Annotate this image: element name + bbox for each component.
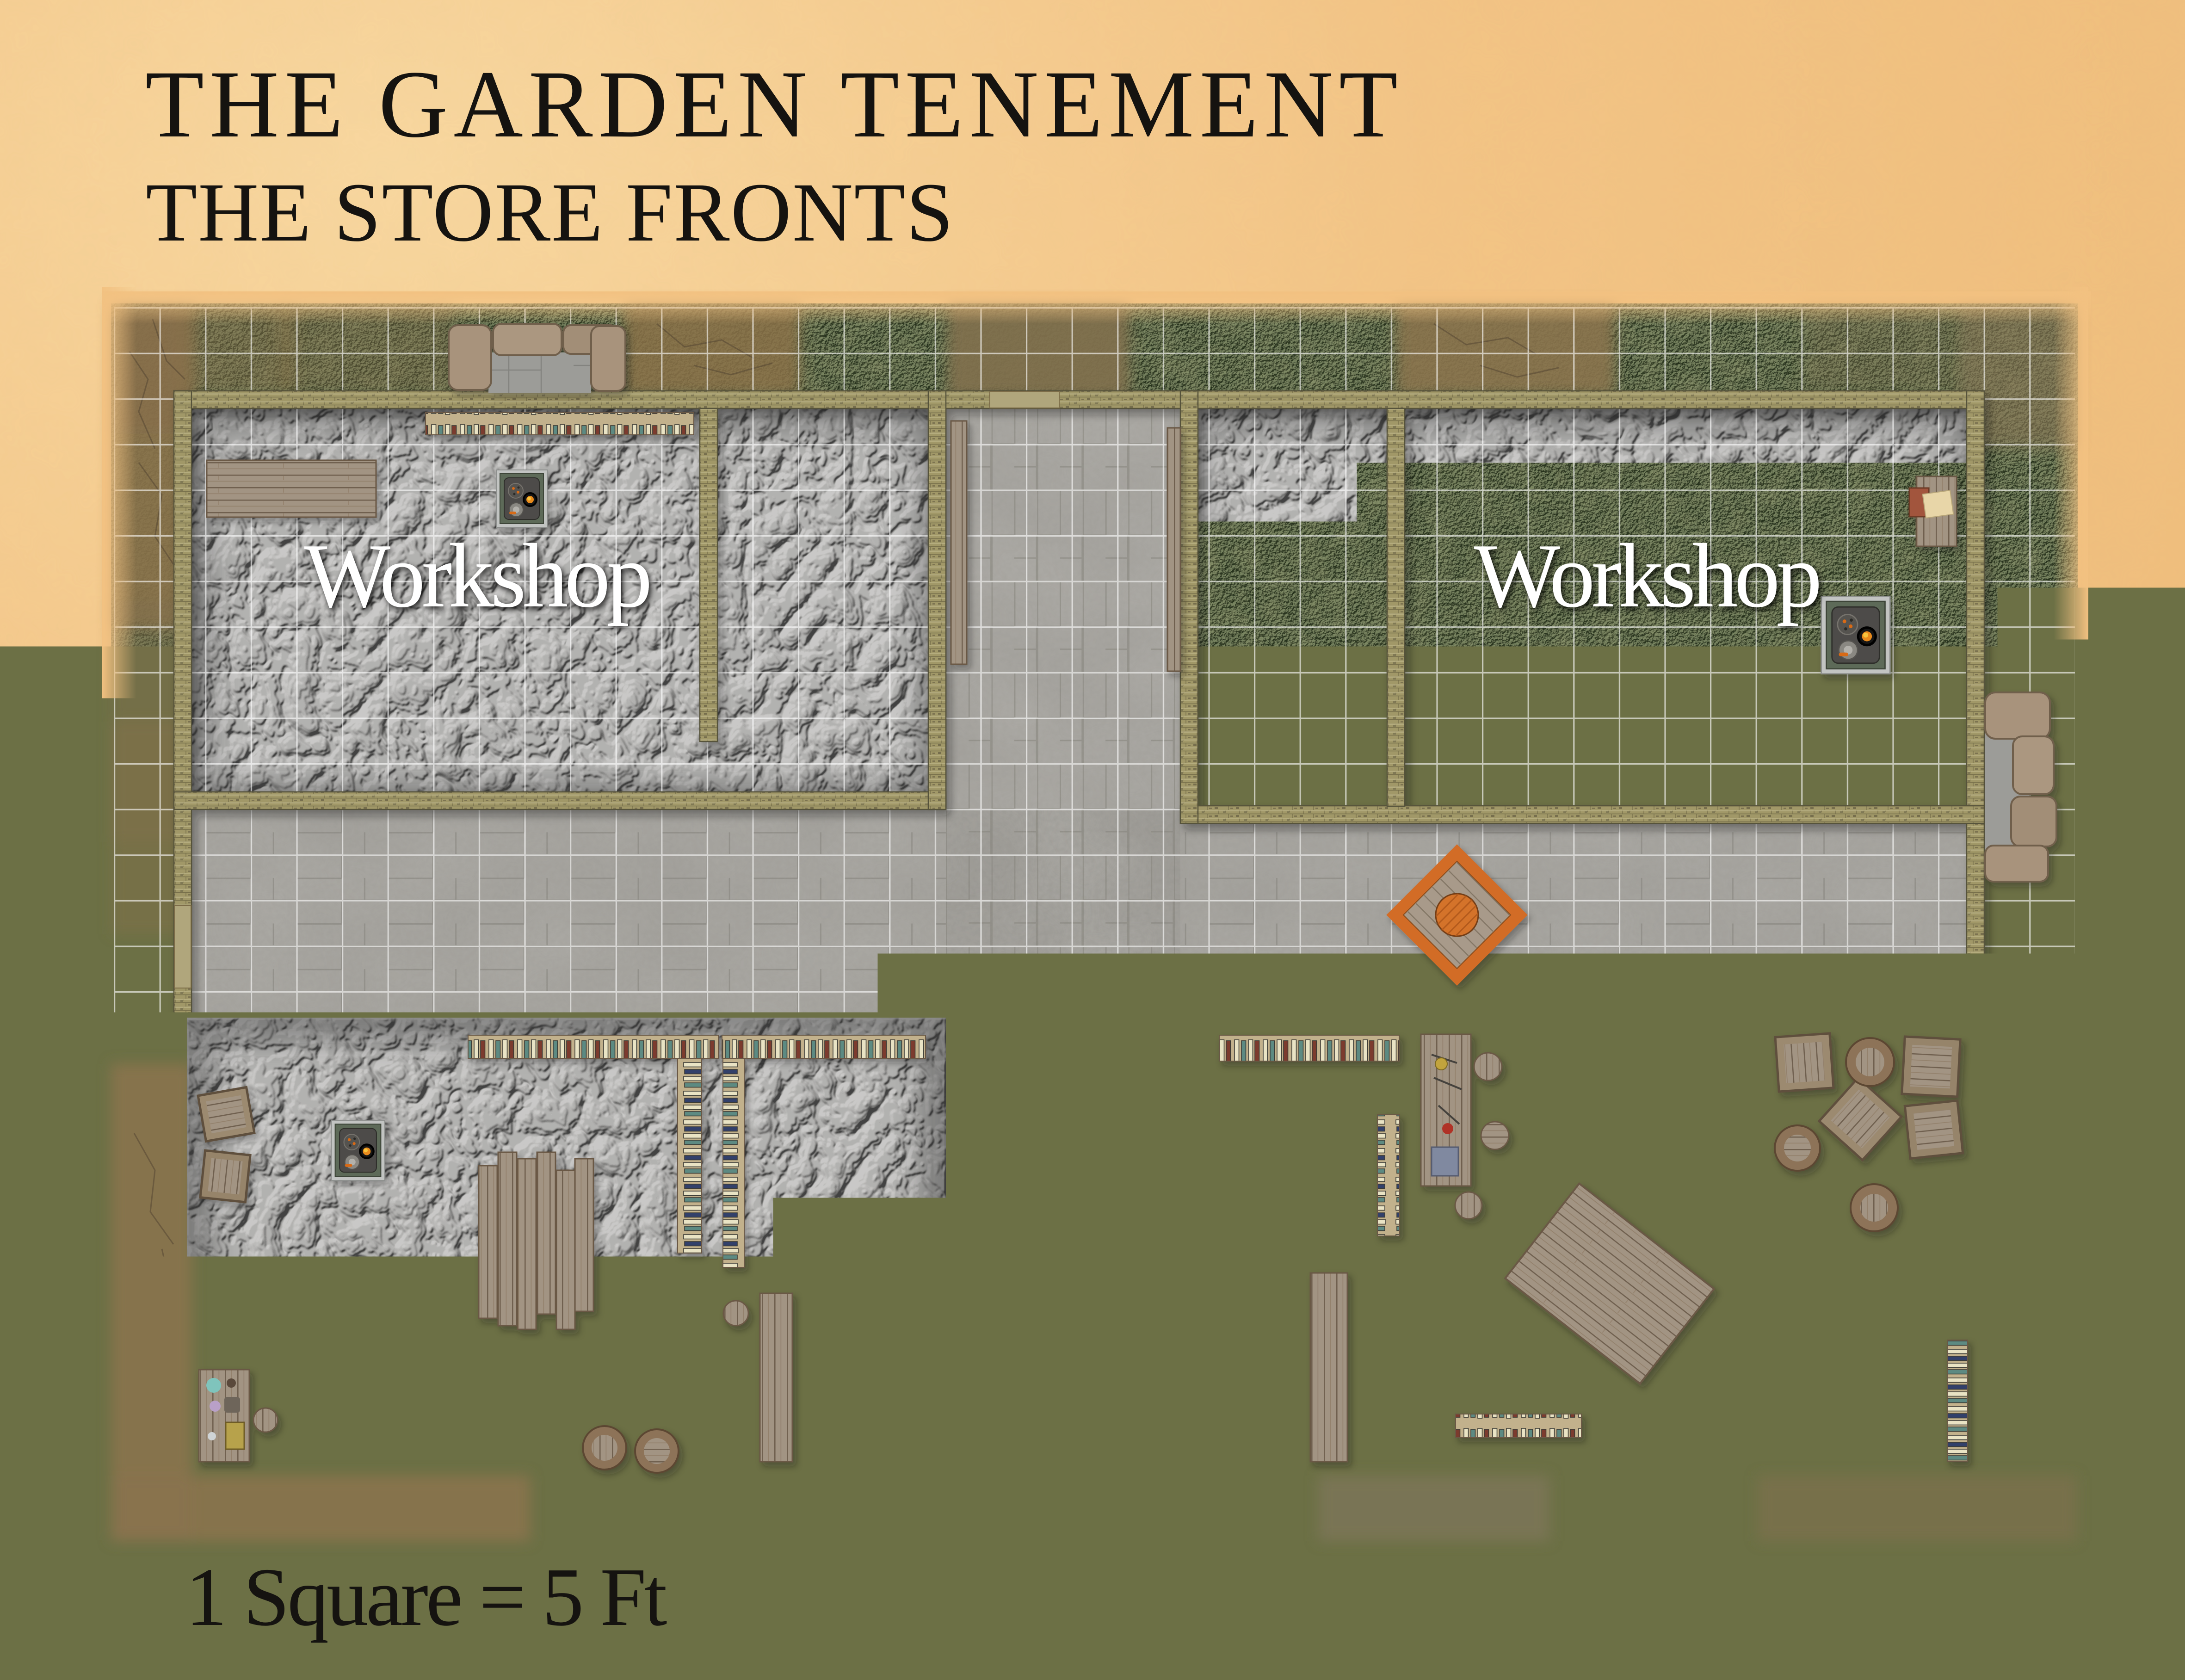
svg-text:Workshop: Workshop <box>1474 525 1819 626</box>
svg-text:Workshop: Workshop <box>304 1190 649 1291</box>
svg-text:Workshop: Workshop <box>304 525 649 626</box>
svg-text:Workshop: Workshop <box>1540 1190 1885 1291</box>
